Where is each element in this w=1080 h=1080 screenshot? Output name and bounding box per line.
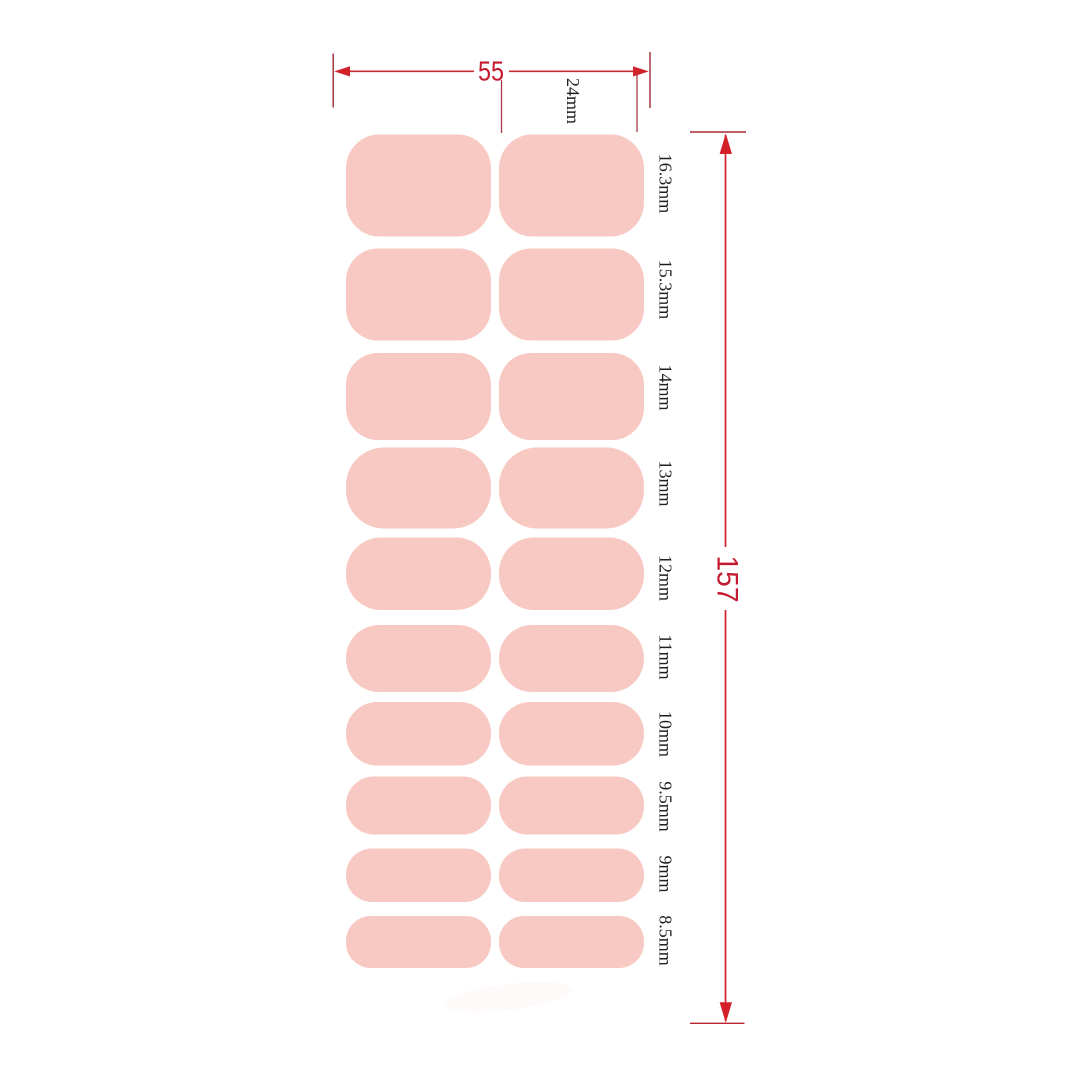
svg-text:9.5mm: 9.5mm	[656, 781, 676, 832]
svg-text:8.5mm: 8.5mm	[656, 915, 676, 966]
svg-text:10mm: 10mm	[656, 711, 676, 757]
svg-text:12mm: 12mm	[656, 555, 676, 601]
svg-text:14mm: 14mm	[656, 364, 676, 410]
svg-text:55: 55	[478, 56, 504, 87]
svg-text:24mm: 24mm	[563, 78, 583, 124]
svg-text:9mm: 9mm	[656, 855, 676, 892]
svg-text:157: 157	[711, 556, 744, 603]
svg-text:15.3mm: 15.3mm	[656, 260, 676, 320]
svg-text:16.3mm: 16.3mm	[656, 154, 676, 214]
svg-text:13mm: 13mm	[656, 460, 676, 506]
svg-text:11mm: 11mm	[656, 634, 676, 679]
